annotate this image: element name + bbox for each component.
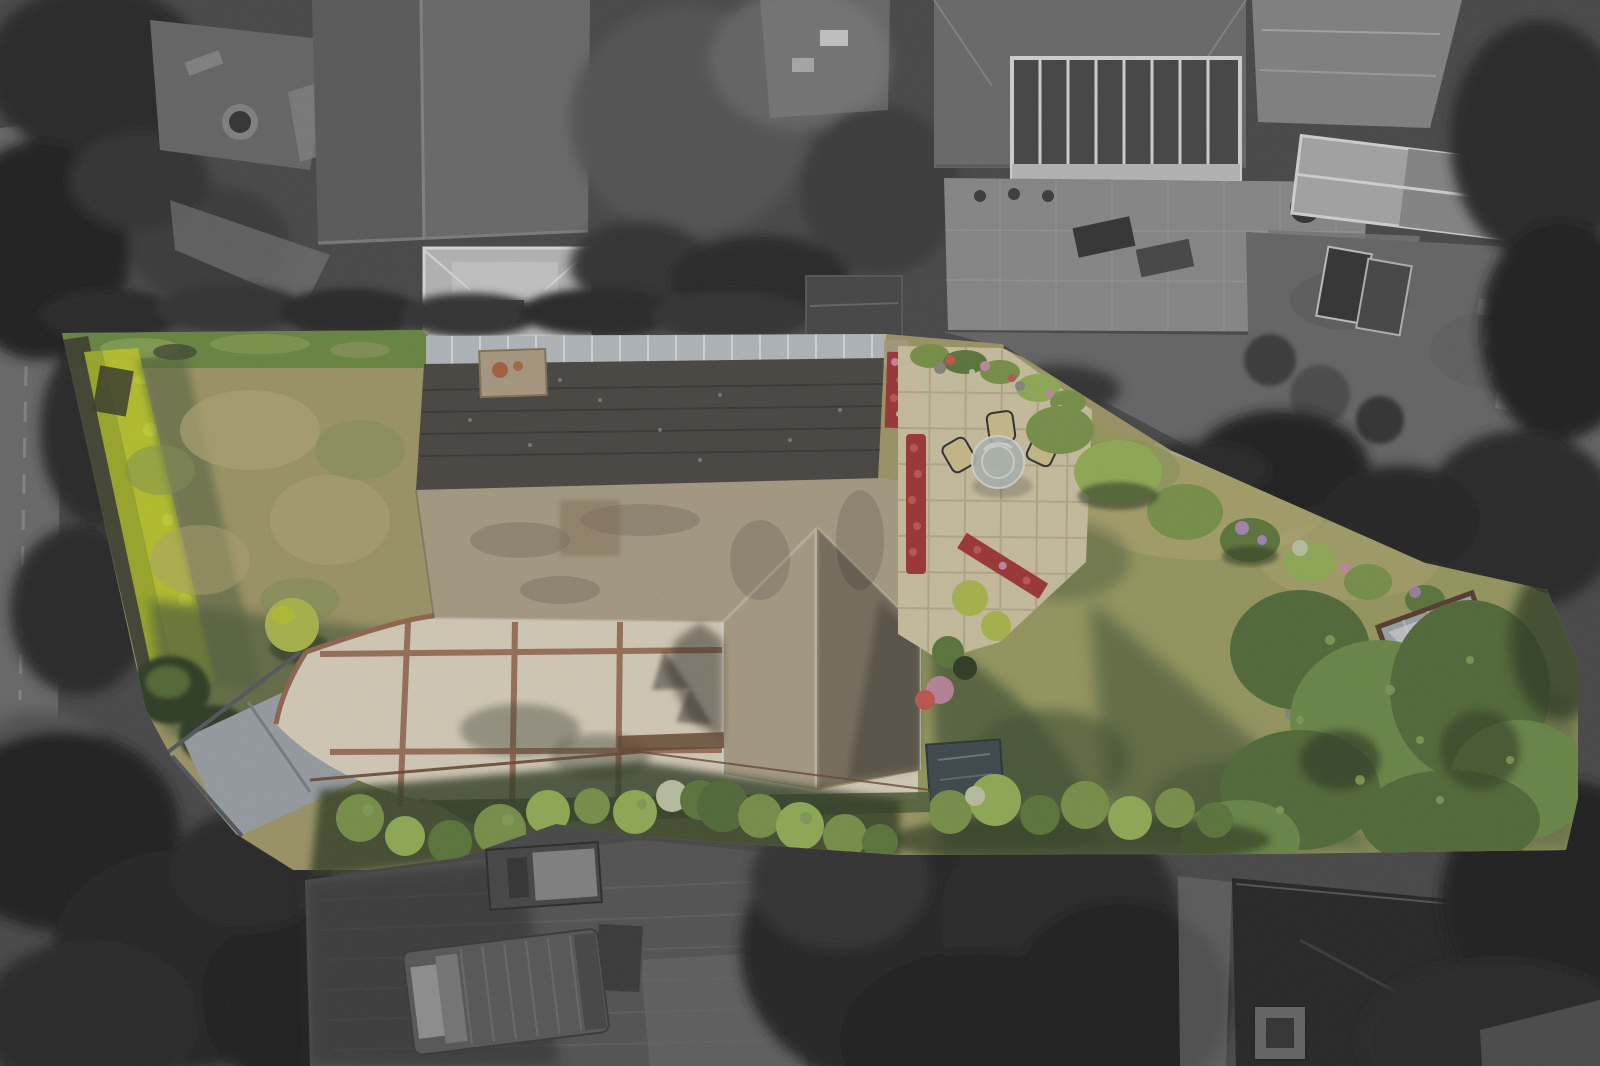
aerial-property-photo (0, 0, 1600, 1066)
grain-overlay-light (0, 0, 1600, 1066)
